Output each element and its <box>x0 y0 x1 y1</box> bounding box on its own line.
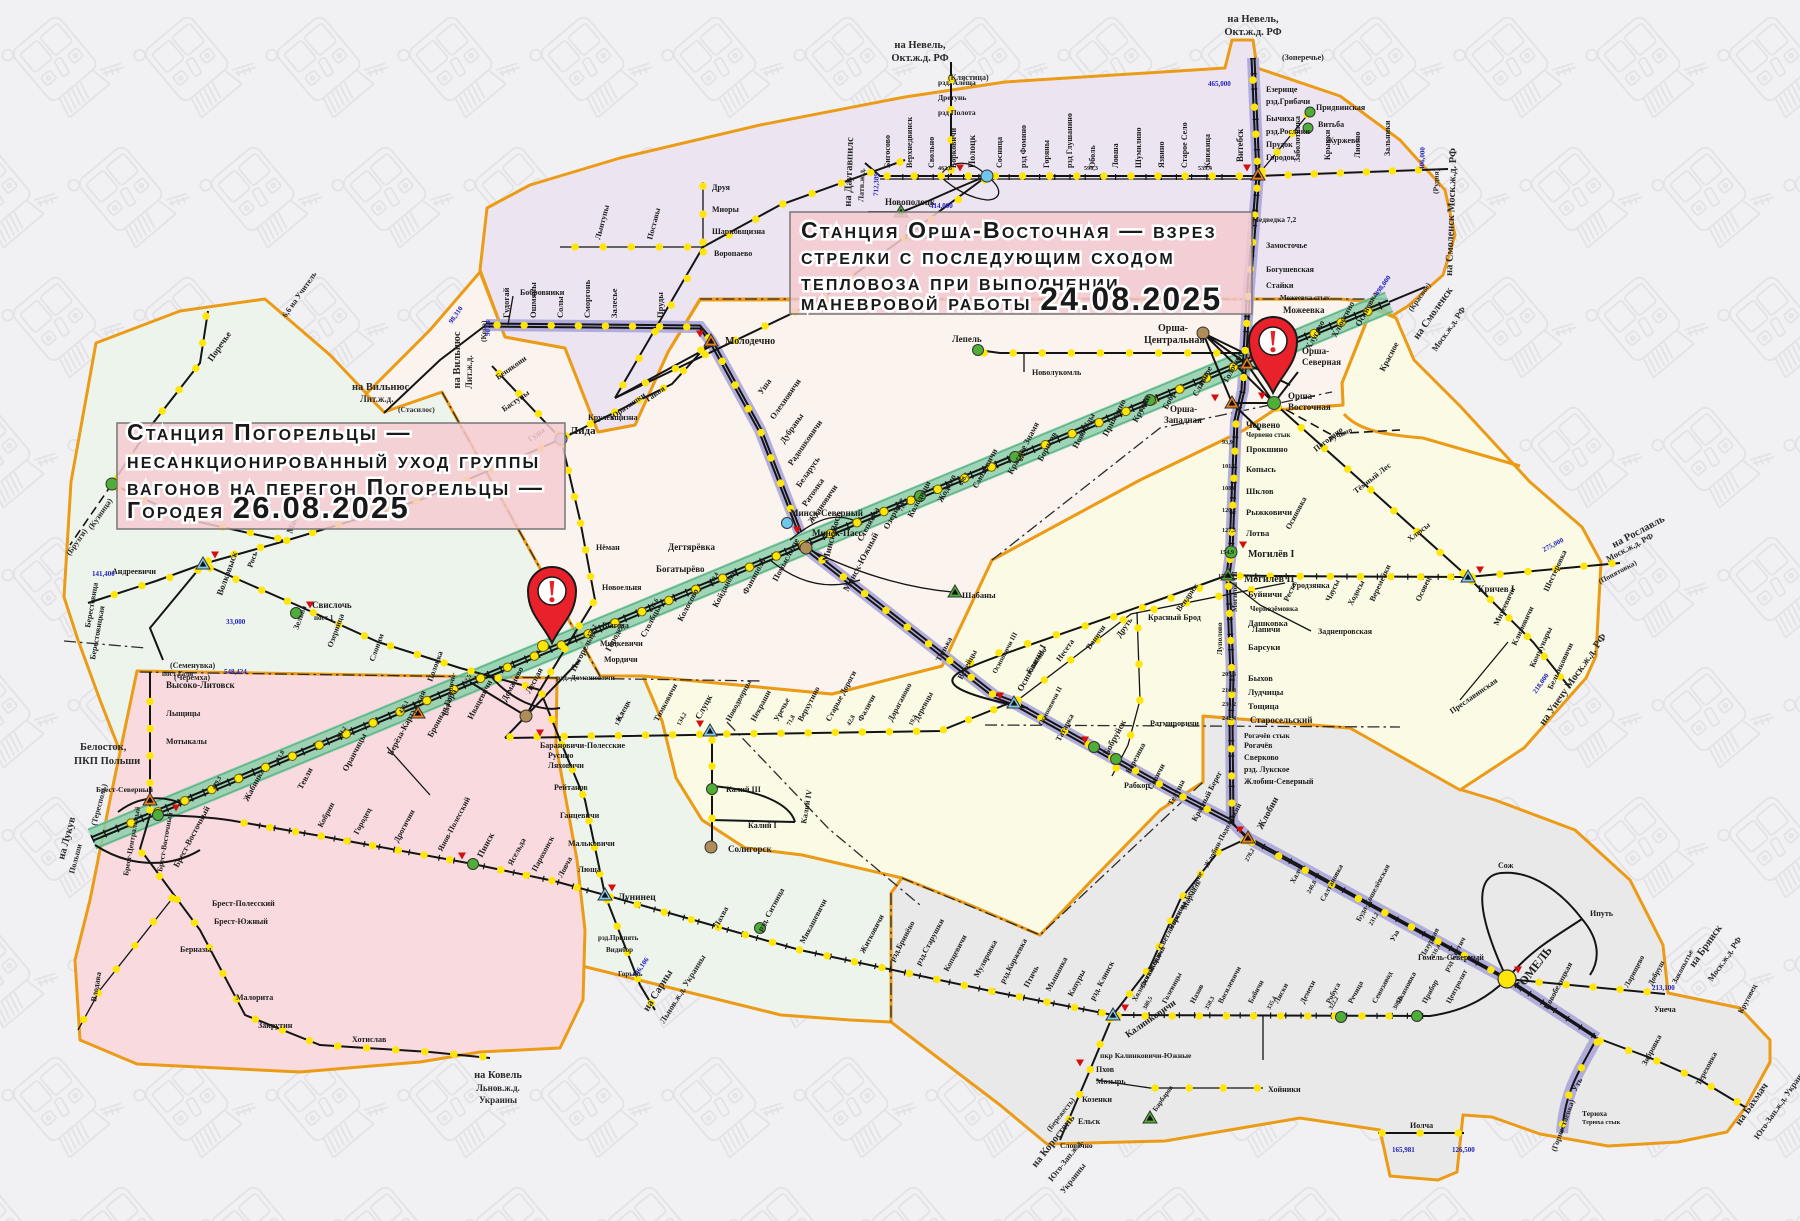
svg-text:Пхов: Пхов <box>1096 1065 1115 1074</box>
svg-text:Лида: Лида <box>570 425 596 437</box>
svg-text:Гудогай: Гудогай <box>501 288 511 318</box>
svg-text:Шклов: Шклов <box>1246 486 1274 496</box>
svg-text:Малорита: Малорита <box>236 993 273 1002</box>
svg-text:Окт.ж.д. РФ: Окт.ж.д. РФ <box>1224 27 1281 38</box>
svg-text:Пруды: Пруды <box>655 292 665 318</box>
svg-text:Молодечно: Молодечно <box>725 336 775 347</box>
svg-text:Полоцк: Полоцк <box>968 134 978 168</box>
svg-text:Сверково: Сверково <box>1244 753 1279 762</box>
svg-text:Червено стык: Червено стык <box>1246 431 1291 439</box>
svg-text:Свольно: Свольно <box>927 137 936 168</box>
svg-text:Ляховичи: Ляховичи <box>548 761 584 770</box>
svg-text:Ельск: Ельск <box>1078 1117 1101 1126</box>
svg-text:Красный Брод: Красный Брод <box>1148 613 1201 622</box>
svg-text:Шабаны: Шабаны <box>962 590 996 600</box>
svg-text:Бычиха: Бычиха <box>1266 114 1295 123</box>
svg-text:Чернозёмовка: Чернозёмовка <box>1250 604 1298 613</box>
svg-text:Заднепровская: Заднепровская <box>1318 627 1373 636</box>
svg-text:Дегтярёвка: Дегтярёвка <box>668 542 715 552</box>
svg-text:Хотислав: Хотислав <box>352 1035 387 1044</box>
svg-text:Бобровники: Бобровники <box>520 288 565 297</box>
svg-text:Козенки: Козенки <box>1082 1095 1112 1104</box>
svg-text:Мальковичи: Мальковичи <box>568 839 615 848</box>
svg-text:Мицкевичи: Мицкевичи <box>600 639 643 648</box>
svg-text:Закрутин: Закрутин <box>258 1021 293 1030</box>
svg-text:Льнов.ж.д.: Льнов.ж.д. <box>476 1083 520 1093</box>
svg-text:Окт.ж.д. РФ: Окт.ж.д. РФ <box>891 53 948 64</box>
svg-text:Луполово: Луполово <box>1215 622 1224 655</box>
svg-text:Копысь: Копысь <box>1246 464 1276 474</box>
svg-text:127,5: 127,5 <box>1222 527 1236 534</box>
svg-text:Видибор: Видибор <box>606 946 633 954</box>
svg-text:548,424: 548,424 <box>224 668 247 676</box>
svg-text:Брест-Полесский: Брест-Полесский <box>212 899 275 908</box>
svg-text:Нёман: Нёман <box>596 543 620 552</box>
svg-text:Лиозно: Лиозно <box>1353 132 1362 158</box>
svg-text:Лит.ж.д.: Лит.ж.д. <box>360 394 393 404</box>
svg-text:Крынки: Крынки <box>1323 129 1332 160</box>
svg-text:рзд Фомино: рзд Фомино <box>1019 125 1028 168</box>
svg-text:(Семенувка): (Семенувка) <box>170 661 216 670</box>
svg-text:Жлобин-Северный: Жлобин-Северный <box>1244 777 1314 786</box>
svg-text:Горяны: Горяны <box>1042 139 1051 168</box>
svg-text:Друя: Друя <box>712 183 731 192</box>
svg-text:Сосница: Сосница <box>995 137 1004 168</box>
svg-text:Ловша: Ловша <box>1111 143 1120 168</box>
svg-text:Прокшино: Прокшино <box>1246 444 1288 454</box>
svg-text:120,2: 120,2 <box>1222 507 1236 514</box>
svg-text:рзд.Росляки: рзд.Росляки <box>1266 127 1310 136</box>
svg-text:Терюха: Терюха <box>1582 1109 1607 1118</box>
svg-text:Новополоцк: Новополоцк <box>885 197 936 207</box>
svg-text:Мозырь: Мозырь <box>1096 1077 1126 1086</box>
svg-text:141,400: 141,400 <box>92 570 115 578</box>
svg-text:!: ! <box>547 573 558 609</box>
svg-text:Солигорск: Солигорск <box>728 844 772 854</box>
svg-text:Северная: Северная <box>1302 357 1341 367</box>
svg-text:Стайки: Стайки <box>1266 281 1294 290</box>
svg-text:210,8: 210,8 <box>1222 687 1236 694</box>
svg-text:Рогачёв стык: Рогачёв стык <box>1244 731 1290 740</box>
svg-text:Новолукомль: Новолукомль <box>1032 368 1082 377</box>
svg-text:на Вильнюс: на Вильнюс <box>352 382 409 393</box>
svg-text:Унеча: Унеча <box>1654 1005 1676 1014</box>
svg-text:Медведка 7,2: Медведка 7,2 <box>1252 215 1297 224</box>
svg-text:несанкционированный уход групп: несанкционированный уход группы <box>127 447 540 473</box>
svg-text:Богатырёво: Богатырёво <box>656 564 705 574</box>
svg-text:Центральная: Центральная <box>1144 335 1205 346</box>
svg-text:Западная: Западная <box>1164 415 1202 425</box>
svg-text:Шумилино: Шумилино <box>1134 128 1143 168</box>
svg-text:590,3: 590,3 <box>1084 165 1098 172</box>
svg-text:Гомель-Северный: Гомель-Северный <box>1418 953 1484 962</box>
svg-text:Белосток,: Белосток, <box>80 742 127 753</box>
svg-text:Свислочь: Свислочь <box>312 600 352 610</box>
svg-text:(Черемха): (Черемха) <box>174 673 210 682</box>
svg-text:907,4: 907,4 <box>484 320 492 336</box>
svg-text:Лотва: Лотва <box>1246 528 1270 538</box>
svg-text:рзд. Домашевичи: рзд. Домашевичи <box>556 673 616 682</box>
svg-text:Минск-Северный: Минск-Северный <box>790 508 863 518</box>
svg-text:Лунинец: Лунинец <box>618 893 656 903</box>
svg-text:ПКП Польши: ПКП Польши <box>74 756 140 767</box>
svg-text:Мотыкалы: Мотыкалы <box>166 737 208 746</box>
svg-text:на Вильнюс: на Вильнюс <box>452 331 463 388</box>
svg-text:205,6: 205,6 <box>1222 671 1236 678</box>
svg-text:Замосточье: Замосточье <box>1266 241 1307 250</box>
svg-text:рзд.Грибачи: рзд.Грибачи <box>1266 97 1311 106</box>
svg-text:стрелки с последующим сходом: стрелки с последующим сходом <box>801 243 1175 269</box>
svg-text:Терюха стык: Терюха стык <box>1582 1119 1620 1126</box>
svg-text:Гродзянка: Гродзянка <box>1292 581 1330 590</box>
svg-text:рзд Глушанино: рзд Глушанино <box>1065 113 1074 168</box>
svg-text:Язвино: Язвино <box>1157 141 1166 168</box>
svg-text:33,000: 33,000 <box>226 618 246 626</box>
svg-text:Барановичи-Полесские: Барановичи-Полесские <box>540 741 625 750</box>
svg-text:Орша-: Орша- <box>1158 323 1188 334</box>
svg-text:Калий I: Калий I <box>748 821 777 830</box>
svg-text:Ратмировичи: Ратмировичи <box>1150 719 1199 728</box>
svg-text:Выгода: Выгода <box>602 621 629 630</box>
svg-text:Орша-: Орша- <box>1302 346 1329 356</box>
svg-text:рзд. Лукское: рзд. Лукское <box>1244 765 1290 774</box>
svg-text:Барсуки: Барсуки <box>1248 642 1280 652</box>
svg-text:рзд.Припять: рзд.Припять <box>598 934 639 942</box>
svg-text:Рыжковичи: Рыжковичи <box>1246 507 1292 517</box>
svg-text:Богушевская: Богушевская <box>1266 265 1315 274</box>
svg-text:(Зоперечье): (Зоперечье) <box>1282 53 1324 62</box>
svg-text:Иолча: Иолча <box>1410 1121 1433 1130</box>
svg-text:Можеевка стык: Можеевка стык <box>1280 294 1331 302</box>
svg-text:Витебск: Витебск <box>1235 128 1245 162</box>
svg-text:165,981: 165,981 <box>1392 1146 1415 1154</box>
svg-text:712,389: 712,389 <box>872 173 881 197</box>
svg-text:108,8: 108,8 <box>1222 485 1236 492</box>
svg-text:Берназы: Берназы <box>180 945 212 954</box>
svg-text:213,100: 213,100 <box>1652 984 1675 992</box>
svg-text:Солы: Солы <box>555 296 565 318</box>
svg-text:Восточная: Восточная <box>1288 402 1331 412</box>
svg-text:Зальники: Зальники <box>1383 120 1392 156</box>
svg-text:462,6: 462,6 <box>938 165 952 172</box>
svg-text:Воропаево: Воропаево <box>714 249 752 258</box>
svg-text:на Невель,: на Невель, <box>1227 14 1279 25</box>
svg-text:Шарковщизна: Шарковщизна <box>712 227 765 236</box>
svg-text:Городок: Городок <box>1266 153 1296 162</box>
svg-text:Витьба: Витьба <box>1318 120 1344 129</box>
svg-text:Старосельский: Старосельский <box>1250 715 1312 725</box>
svg-text:(Рудня): (Рудня) <box>1431 168 1441 194</box>
svg-text:Ганцевичи: Ганцевичи <box>560 811 600 820</box>
svg-text:Могилёв I: Могилёв I <box>1248 549 1295 560</box>
svg-text:пкр Калинковичи-Южные: пкр Калинковичи-Южные <box>1100 1051 1192 1060</box>
svg-text:101,9: 101,9 <box>1222 463 1236 470</box>
svg-text:рзд Полота: рзд Полота <box>938 108 976 117</box>
svg-text:539,4: 539,4 <box>1198 165 1212 172</box>
svg-text:Рейтанов: Рейтанов <box>554 783 588 792</box>
svg-text:126,500: 126,500 <box>1452 1146 1475 1154</box>
svg-text:242,4: 242,4 <box>1222 715 1236 722</box>
svg-text:Книжица: Книжица <box>1203 134 1212 168</box>
svg-text:Мордичи: Мордичи <box>604 655 638 664</box>
svg-text:Борковичи: Борковичи <box>949 128 958 168</box>
svg-text:Старое Село: Старое Село <box>1180 122 1189 168</box>
svg-text:Придвинская: Придвинская <box>1316 103 1366 112</box>
svg-text:Станция Погорельцы —: Станция Погорельцы — <box>127 419 412 445</box>
svg-text:Латв.ж.д.: Латв.ж.д. <box>856 168 866 202</box>
svg-text:Лудчицы: Лудчицы <box>1248 687 1284 697</box>
svg-text:Заболотинка: Заболотинка <box>1293 116 1302 162</box>
svg-text:406,000: 406,000 <box>1418 147 1427 171</box>
svg-text:230,2: 230,2 <box>1222 701 1236 708</box>
svg-text:пост 1: пост 1 <box>314 614 334 622</box>
svg-text:Лепель: Лепель <box>952 334 982 344</box>
svg-text:(Стасилос): (Стасилос) <box>398 405 435 414</box>
svg-text:Рогачёв: Рогачёв <box>1244 741 1273 750</box>
svg-text:на Ковель: на Ковель <box>474 1070 522 1081</box>
svg-text:Езерище: Езерище <box>1266 85 1298 94</box>
svg-text:93,9: 93,9 <box>1222 439 1233 446</box>
svg-text:Калий III: Калий III <box>726 785 761 794</box>
svg-text:Бигосово: Бигосово <box>883 135 892 168</box>
svg-text:(Клястица): (Клястица) <box>948 73 989 82</box>
svg-text:Люща: Люща <box>578 865 601 874</box>
svg-text:Буйничи: Буйничи <box>1248 589 1282 599</box>
svg-text:Сож: Сож <box>1498 861 1514 870</box>
svg-text:!: ! <box>1268 323 1279 359</box>
svg-text:Миоры: Миоры <box>712 205 740 214</box>
svg-text:Лапичи: Лапичи <box>1252 625 1281 634</box>
svg-text:Андреевичи: Андреевичи <box>112 567 156 576</box>
svg-text:Рабкор: Рабкор <box>1124 781 1150 790</box>
svg-text:Прудок: Прудок <box>1266 140 1293 149</box>
svg-text:Тощица: Тощица <box>1248 701 1280 711</box>
svg-text:Украины: Украины <box>479 1095 517 1105</box>
svg-text:465,000: 465,000 <box>1208 80 1231 88</box>
svg-text:Брест-Южный: Брест-Южный <box>214 917 268 926</box>
svg-text:Червено: Червено <box>1246 420 1281 430</box>
svg-text:на Невель,: на Невель, <box>894 40 946 51</box>
svg-text:Могилёв II: Могилёв II <box>1244 574 1294 585</box>
svg-text:Верхнедвинск: Верхнедвинск <box>905 116 914 168</box>
svg-text:Ипуть: Ипуть <box>1590 909 1614 918</box>
svg-text:Лыщицы: Лыщицы <box>166 709 201 718</box>
svg-text:Хойники: Хойники <box>1268 1085 1301 1094</box>
svg-text:Лит.ж.д.: Лит.ж.д. <box>464 355 474 388</box>
svg-text:Можеевка: Можеевка <box>1283 305 1325 315</box>
svg-text:Орша-: Орша- <box>1288 391 1315 401</box>
svg-text:Быхов: Быхов <box>1248 673 1273 683</box>
svg-text:158,2: 158,2 <box>1218 573 1232 580</box>
svg-text:Русино: Русино <box>548 751 573 760</box>
svg-text:Станция Орша-Восточная — взрез: Станция Орша-Восточная — взрез <box>801 217 1217 243</box>
svg-text:Новоельня: Новоельня <box>602 583 642 592</box>
svg-text:Сморгонь: Сморгонь <box>582 279 592 318</box>
svg-text:Залесье: Залесье <box>609 288 619 318</box>
svg-text:154,9: 154,9 <box>1220 549 1234 556</box>
svg-text:Дретунь: Дретунь <box>938 93 966 102</box>
svg-text:414,000: 414,000 <box>930 202 953 210</box>
svg-text:Орша-: Орша- <box>1170 404 1197 414</box>
